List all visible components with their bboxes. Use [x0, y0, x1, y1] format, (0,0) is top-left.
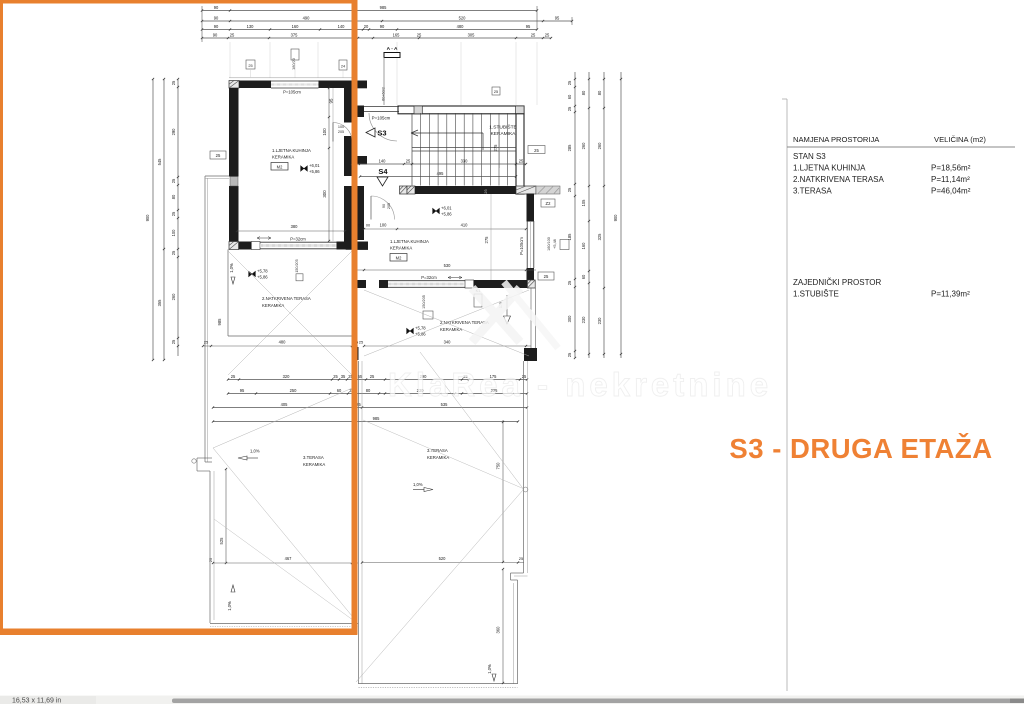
svg-text:90: 90 [214, 5, 219, 10]
svg-text:1,0%: 1,0% [229, 263, 234, 273]
svg-text:KERAMIKA: KERAMIKA [303, 462, 325, 467]
svg-text:35: 35 [341, 374, 346, 379]
svg-text:300: 300 [322, 190, 327, 198]
svg-text:900: 900 [613, 214, 618, 222]
svg-text:330: 330 [461, 158, 469, 163]
svg-text:25: 25 [567, 80, 572, 85]
svg-text:KERAMIKA: KERAMIKA [491, 131, 517, 137]
svg-text:P=11,39m²: P=11,39m² [931, 290, 970, 299]
svg-text:495: 495 [437, 171, 445, 176]
svg-text:140: 140 [379, 158, 387, 163]
svg-text:260: 260 [597, 142, 602, 150]
svg-text:205: 205 [338, 130, 344, 134]
svg-text:P=105cm: P=105cm [519, 237, 524, 255]
svg-text:A - A: A - A [387, 46, 398, 52]
svg-text:520: 520 [439, 556, 447, 561]
svg-text:985: 985 [380, 5, 388, 10]
svg-text:2.NATKRIVENA TERASA: 2.NATKRIVENA TERASA [262, 296, 311, 301]
svg-text:90: 90 [214, 24, 219, 29]
svg-text:25: 25 [567, 106, 572, 111]
svg-text:25: 25 [531, 32, 536, 37]
svg-text:95: 95 [329, 98, 334, 103]
svg-text:205: 205 [387, 203, 391, 209]
svg-text:25: 25 [519, 556, 524, 561]
svg-text:490: 490 [303, 15, 311, 20]
svg-text:25: 25 [567, 280, 572, 285]
svg-text:160: 160 [581, 242, 586, 250]
svg-text:+5,48: +5,48 [553, 239, 557, 249]
svg-text:25: 25 [171, 178, 176, 183]
svg-text:275: 275 [493, 144, 498, 152]
svg-text:160: 160 [292, 24, 300, 29]
svg-text:KERAMIKA: KERAMIKA [272, 155, 294, 160]
svg-text:3.TERASA: 3.TERASA [793, 187, 832, 196]
svg-text:25: 25 [544, 274, 549, 279]
svg-text:250: 250 [290, 388, 298, 393]
svg-text:25: 25 [171, 339, 176, 344]
svg-text:1,0%: 1,0% [227, 601, 232, 611]
svg-text:1,0%: 1,0% [250, 449, 260, 454]
svg-text:25: 25 [483, 188, 488, 193]
svg-text:530: 530 [444, 263, 452, 268]
svg-text:1.STUBIŠTE: 1.STUBIŠTE [793, 290, 839, 299]
svg-text:25: 25 [567, 352, 572, 357]
svg-text:360: 360 [496, 626, 501, 634]
svg-text:290: 290 [171, 128, 176, 136]
svg-text:25: 25 [406, 158, 411, 163]
svg-text:16,53 x 11,69 in: 16,53 x 11,69 in [12, 698, 61, 704]
svg-text:+6,01: +6,01 [309, 163, 320, 168]
svg-text:375: 375 [291, 32, 299, 37]
svg-text:275: 275 [484, 236, 489, 244]
svg-text:25: 25 [417, 32, 422, 37]
svg-text:25: 25 [534, 148, 539, 153]
svg-text:+5,86: +5,86 [441, 212, 452, 217]
svg-text:95: 95 [240, 388, 245, 393]
svg-text:P=11,14m²: P=11,14m² [931, 175, 970, 184]
svg-text:100: 100 [380, 223, 388, 228]
svg-text:20: 20 [364, 24, 369, 29]
svg-text:410: 410 [461, 223, 469, 228]
svg-text:1,0%: 1,0% [413, 482, 423, 487]
svg-text:80: 80 [597, 90, 602, 95]
svg-text:STAN S3: STAN S3 [793, 152, 826, 161]
svg-text:25: 25 [171, 211, 176, 216]
svg-text:150/205: 150/205 [422, 295, 426, 309]
svg-text:100: 100 [338, 125, 344, 129]
svg-text:25: 25 [567, 187, 572, 192]
svg-text:25: 25 [248, 63, 252, 68]
svg-text:150/205: 150/205 [295, 259, 299, 272]
svg-text:+5,86: +5,86 [257, 275, 268, 280]
svg-text:165: 165 [393, 32, 401, 37]
svg-text:95: 95 [526, 24, 531, 29]
svg-text:105: 105 [581, 199, 586, 207]
svg-text:405: 405 [281, 402, 289, 407]
svg-text:KlaRea - nekretnine: KlaRea - nekretnine [388, 366, 772, 403]
svg-text:25: 25 [519, 158, 524, 163]
svg-text:80: 80 [366, 388, 371, 393]
svg-text:25: 25 [359, 340, 364, 345]
svg-text:985: 985 [373, 416, 381, 421]
svg-text:160/100: 160/100 [547, 237, 551, 251]
svg-text:2.NATKRIVENA TERASA: 2.NATKRIVENA TERASA [793, 175, 885, 184]
svg-text:P=105cm: P=105cm [283, 90, 301, 95]
svg-text:+5,78: +5,78 [415, 326, 426, 331]
svg-text:25: 25 [230, 32, 235, 37]
svg-text:230: 230 [597, 317, 602, 325]
svg-text:750: 750 [496, 462, 501, 470]
svg-text:25: 25 [357, 224, 361, 228]
svg-text:+5,78: +5,78 [257, 269, 268, 274]
svg-text:100: 100 [171, 229, 176, 237]
svg-text:80: 80 [171, 194, 176, 199]
svg-text:25: 25 [171, 250, 176, 255]
svg-text:985: 985 [217, 318, 222, 326]
svg-text:KERAMIKA: KERAMIKA [440, 327, 462, 332]
svg-text:1.LJETNA KUHINJA: 1.LJETNA KUHINJA [390, 239, 429, 244]
svg-text:NAMJENA PROSTORIJA: NAMJENA PROSTORIJA [793, 135, 880, 144]
svg-text:380: 380 [291, 224, 299, 229]
svg-text:90: 90 [382, 204, 386, 208]
svg-text:P=32cm: P=32cm [290, 237, 306, 242]
svg-text:900: 900 [145, 214, 150, 222]
svg-text:467: 467 [285, 556, 293, 561]
svg-text:95: 95 [555, 15, 560, 20]
svg-text:285: 285 [567, 144, 572, 152]
svg-text:P=18,56m²: P=18,56m² [931, 164, 971, 173]
svg-text:25: 25 [333, 374, 338, 379]
svg-text:25: 25 [171, 80, 176, 85]
svg-text:VELIČINA (m2): VELIČINA (m2) [934, 135, 986, 144]
svg-text:355: 355 [157, 299, 162, 307]
svg-text:3.TERASA: 3.TERASA [303, 455, 324, 460]
svg-text:90: 90 [213, 32, 218, 37]
svg-text:25: 25 [204, 340, 209, 345]
svg-text:230: 230 [581, 316, 586, 324]
svg-text:340: 340 [444, 340, 452, 345]
svg-text:60: 60 [337, 388, 342, 393]
svg-text:25: 25 [231, 374, 236, 379]
svg-text:525: 525 [219, 537, 224, 545]
svg-text:260: 260 [171, 293, 176, 301]
svg-text:60+60/2: 60+60/2 [382, 87, 386, 101]
svg-text:60: 60 [567, 94, 572, 99]
svg-text:S3: S3 [377, 129, 386, 138]
svg-text:1,0%: 1,0% [487, 664, 492, 674]
svg-text:25: 25 [494, 90, 498, 94]
svg-text:00: 00 [366, 224, 370, 228]
svg-text:1.LJETNA KUHINJA: 1.LJETNA KUHINJA [793, 164, 866, 173]
svg-text:KERAMIKA: KERAMIKA [390, 246, 412, 251]
svg-text:25: 25 [545, 32, 550, 37]
svg-text:320: 320 [283, 374, 291, 379]
svg-text:300: 300 [567, 315, 572, 323]
svg-text:140: 140 [338, 24, 346, 29]
svg-text:ZAJEDNIČKI PROSTOR: ZAJEDNIČKI PROSTOR [793, 278, 882, 287]
svg-text:1.STUBIŠTE: 1.STUBIŠTE [489, 124, 516, 131]
svg-text:325: 325 [597, 233, 602, 241]
svg-text:P=32cm: P=32cm [421, 275, 437, 280]
svg-text:80: 80 [581, 90, 586, 95]
svg-text:480: 480 [279, 340, 287, 345]
svg-text:520: 520 [459, 15, 467, 20]
svg-text:25: 25 [370, 374, 375, 379]
svg-text:S4: S4 [378, 167, 388, 176]
svg-text:1.LJETNA KUHINJA: 1.LJETNA KUHINJA [272, 148, 311, 153]
svg-text:M2: M2 [277, 165, 283, 170]
svg-text:60: 60 [581, 274, 586, 279]
svg-text:100: 100 [322, 128, 327, 136]
svg-text:305: 305 [468, 32, 476, 37]
svg-text:P=105cm: P=105cm [372, 116, 391, 121]
svg-text:480: 480 [457, 24, 465, 29]
svg-text:+6,01: +6,01 [441, 206, 452, 211]
svg-text:130: 130 [247, 24, 255, 29]
svg-text:P=46,04m²: P=46,04m² [931, 187, 971, 196]
svg-text:M2: M2 [396, 256, 402, 261]
svg-text:545: 545 [157, 158, 162, 166]
svg-text:25: 25 [216, 153, 221, 158]
svg-text:+5,86: +5,86 [309, 169, 320, 174]
svg-text:90: 90 [380, 24, 385, 29]
svg-text:+5,86: +5,86 [415, 332, 426, 337]
svg-text:25: 25 [208, 557, 213, 562]
svg-text:Z2: Z2 [546, 201, 552, 206]
svg-text:260: 260 [581, 142, 586, 150]
svg-text:90: 90 [214, 15, 219, 20]
svg-text:S3 - DRUGA ETAŽA: S3 - DRUGA ETAŽA [729, 433, 992, 464]
